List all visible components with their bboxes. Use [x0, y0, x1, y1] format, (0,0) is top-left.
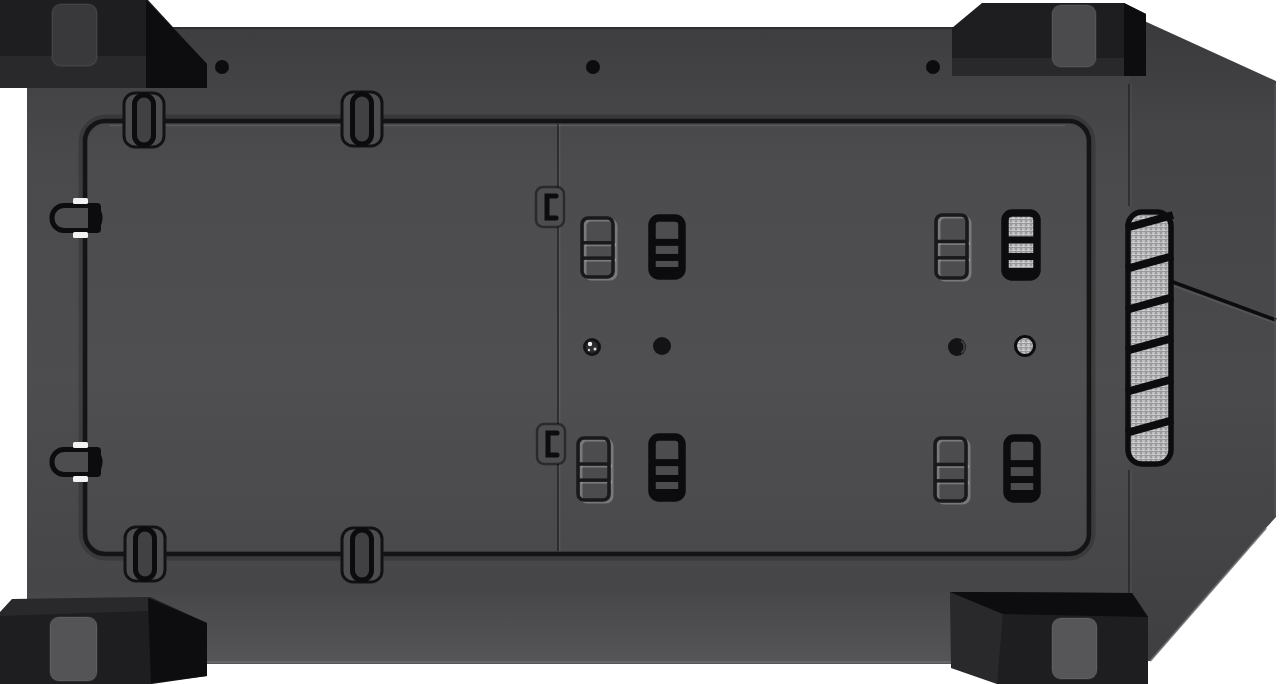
side-vent-mesh — [1126, 212, 1173, 464]
rim-screw-hole — [926, 60, 940, 74]
inner-panel — [83, 119, 1091, 556]
rim-screw-hole — [215, 60, 229, 74]
seam-latch-hole — [537, 424, 565, 464]
panel-screw-hole — [653, 337, 671, 355]
cut-edge-highlight — [73, 198, 88, 204]
pill-slot-vertical — [125, 527, 165, 581]
seam-latch-hole — [536, 187, 564, 227]
pill-slot-horizontal — [52, 198, 101, 238]
pill-slot-vertical — [342, 92, 382, 146]
foot-bottom-right — [950, 592, 1148, 684]
cut-edge-highlight — [73, 476, 88, 482]
foot-top-right — [952, 3, 1146, 76]
panel-screw-hole — [1016, 337, 1035, 356]
cut-edge-highlight — [73, 232, 88, 238]
case-bottom-illustration — [0, 0, 1280, 684]
panel-screw-hole — [583, 338, 601, 356]
mounting-clip — [1004, 213, 1038, 277]
rubber-pad — [1052, 618, 1097, 679]
foot-top-left — [0, 0, 207, 88]
rubber-pad — [52, 4, 97, 66]
rubber-pad — [1052, 5, 1096, 67]
panel-screw-hole — [948, 338, 966, 356]
foot-bottom-left — [0, 597, 207, 684]
pill-slot-horizontal — [52, 442, 101, 482]
pill-slot-vertical — [342, 528, 382, 582]
rim-screw-hole — [586, 60, 600, 74]
product-photo — [0, 0, 1280, 684]
pill-slot-vertical — [124, 93, 164, 147]
cut-edge-highlight — [73, 442, 88, 448]
rubber-pad — [50, 617, 97, 681]
